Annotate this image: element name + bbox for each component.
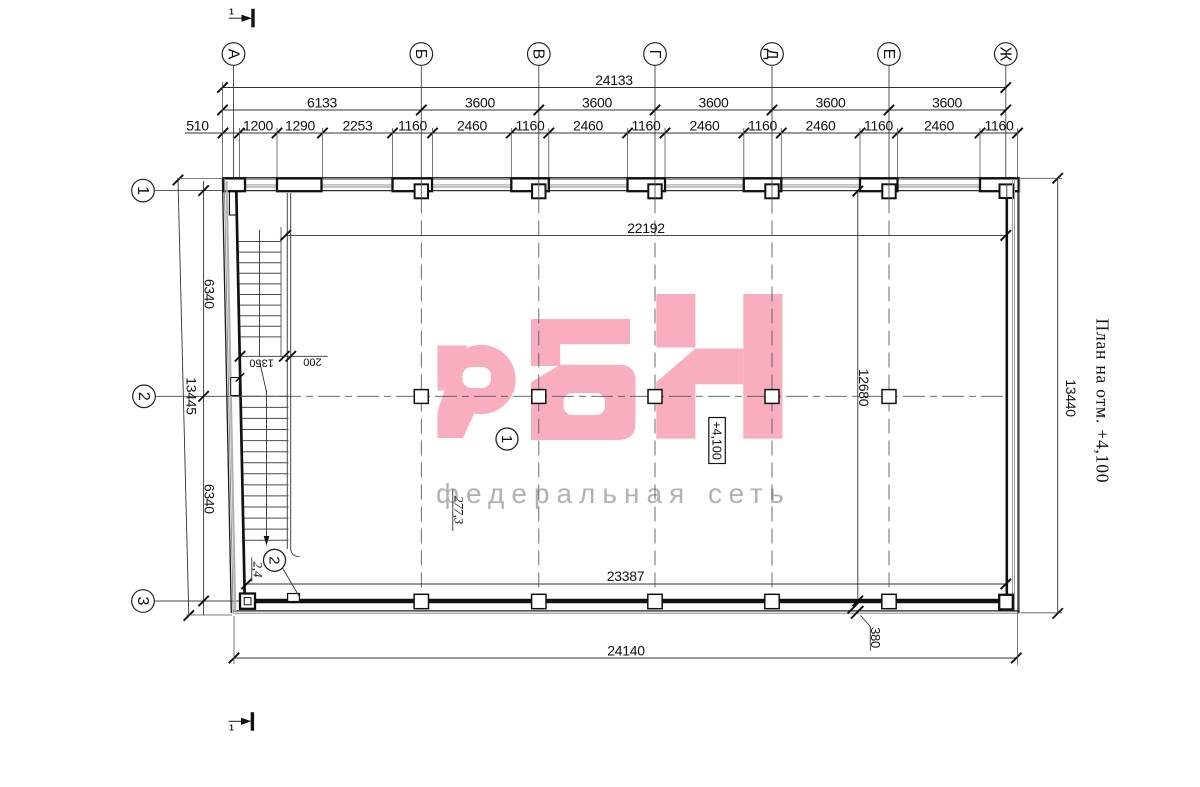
svg-text:Ж: Ж <box>997 47 1014 62</box>
svg-text:3: 3 <box>134 597 151 606</box>
svg-text:1160: 1160 <box>516 118 545 134</box>
svg-text:200: 200 <box>303 355 321 367</box>
svg-text:510: 510 <box>186 118 209 134</box>
svg-text:23387: 23387 <box>607 568 645 584</box>
svg-text:План на отм. +4,100: План на отм. +4,100 <box>1093 319 1113 484</box>
svg-text:2460: 2460 <box>924 118 954 134</box>
svg-text:24140: 24140 <box>607 643 645 659</box>
svg-text:+4,100: +4,100 <box>710 421 724 460</box>
svg-text:1160: 1160 <box>748 118 777 134</box>
svg-text:1290: 1290 <box>285 118 315 134</box>
svg-text:24133: 24133 <box>595 72 633 88</box>
svg-text:3600: 3600 <box>932 95 962 111</box>
svg-text:А: А <box>224 49 241 60</box>
svg-text:федеральная: федеральная <box>436 478 691 509</box>
svg-text:3600: 3600 <box>699 95 729 111</box>
svg-text:2,4: 2,4 <box>250 562 264 578</box>
svg-text:2460: 2460 <box>457 118 487 134</box>
svg-text:1: 1 <box>134 186 151 195</box>
svg-text:12680: 12680 <box>856 369 872 407</box>
svg-text:277,3: 277,3 <box>452 496 466 524</box>
svg-text:1: 1 <box>498 435 515 443</box>
svg-text:2253: 2253 <box>343 118 373 134</box>
svg-text:380: 380 <box>868 627 883 648</box>
svg-text:2: 2 <box>266 556 283 564</box>
svg-text:3600: 3600 <box>582 95 612 111</box>
svg-text:1160: 1160 <box>398 118 427 134</box>
svg-text:сеть: сеть <box>708 478 790 509</box>
svg-text:Б: Б <box>412 49 429 60</box>
svg-text:1160: 1160 <box>985 118 1014 134</box>
svg-text:2460: 2460 <box>806 118 836 134</box>
svg-text:22192: 22192 <box>627 220 665 236</box>
svg-text:13440: 13440 <box>1063 379 1079 417</box>
svg-text:1160: 1160 <box>864 118 893 134</box>
svg-text:1: 1 <box>229 8 234 17</box>
svg-text:6133: 6133 <box>307 95 337 111</box>
svg-text:6340: 6340 <box>202 484 218 514</box>
svg-text:13445: 13445 <box>184 377 200 415</box>
svg-text:1350: 1350 <box>249 356 273 368</box>
svg-text:2: 2 <box>135 392 152 401</box>
svg-text:2460: 2460 <box>690 118 720 134</box>
svg-text:1200: 1200 <box>243 118 273 134</box>
svg-text:1160: 1160 <box>632 118 661 134</box>
svg-text:Г: Г <box>646 50 663 59</box>
svg-text:Д: Д <box>763 49 780 60</box>
svg-text:3600: 3600 <box>465 95 495 111</box>
svg-text:2460: 2460 <box>573 118 603 134</box>
svg-text:В: В <box>530 49 547 60</box>
svg-text:6340: 6340 <box>202 279 218 309</box>
svg-text:1: 1 <box>229 724 234 733</box>
svg-text:3600: 3600 <box>816 95 846 111</box>
svg-text:Е: Е <box>880 49 897 60</box>
